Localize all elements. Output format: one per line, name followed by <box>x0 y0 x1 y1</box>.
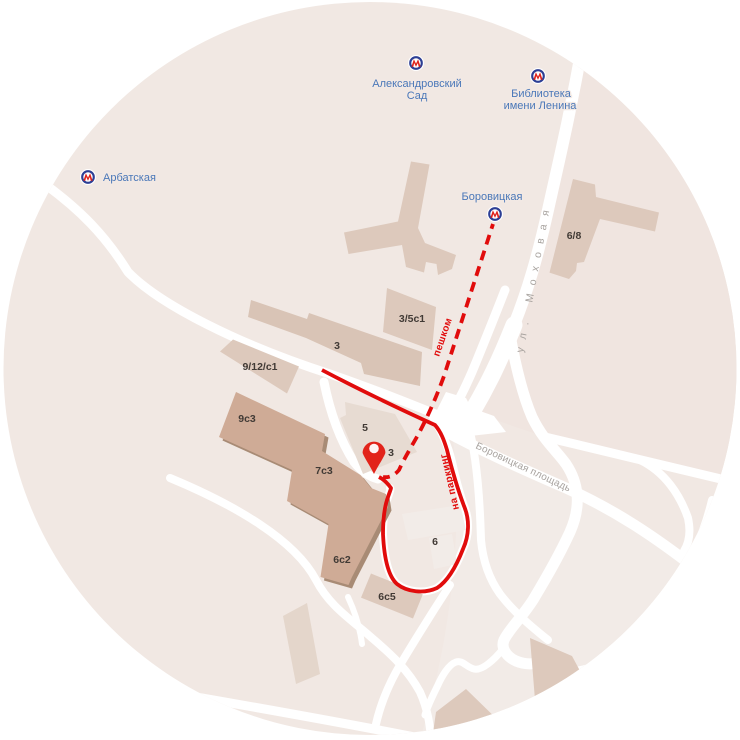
svg-text:Сад: Сад <box>407 90 428 102</box>
svg-text:5: 5 <box>362 422 368 434</box>
svg-text:6с5: 6с5 <box>378 591 396 603</box>
svg-text:6: 6 <box>432 536 438 548</box>
svg-text:6/8: 6/8 <box>567 230 582 242</box>
svg-text:Арбатская: Арбатская <box>103 172 156 184</box>
svg-text:6с2: 6с2 <box>333 554 351 566</box>
svg-text:3: 3 <box>388 447 394 459</box>
svg-text:3/5с1: 3/5с1 <box>399 313 425 325</box>
svg-text:9/12/с1: 9/12/с1 <box>242 361 277 373</box>
svg-text:7с3: 7с3 <box>315 465 333 477</box>
svg-text:3: 3 <box>334 340 340 352</box>
svg-text:Библиотека: Библиотека <box>511 88 572 100</box>
svg-text:Боровицкая: Боровицкая <box>462 191 523 203</box>
svg-text:9с3: 9с3 <box>238 413 256 425</box>
svg-text:имени Ленина: имени Ленина <box>504 100 578 112</box>
svg-text:Александровский: Александровский <box>372 78 461 90</box>
